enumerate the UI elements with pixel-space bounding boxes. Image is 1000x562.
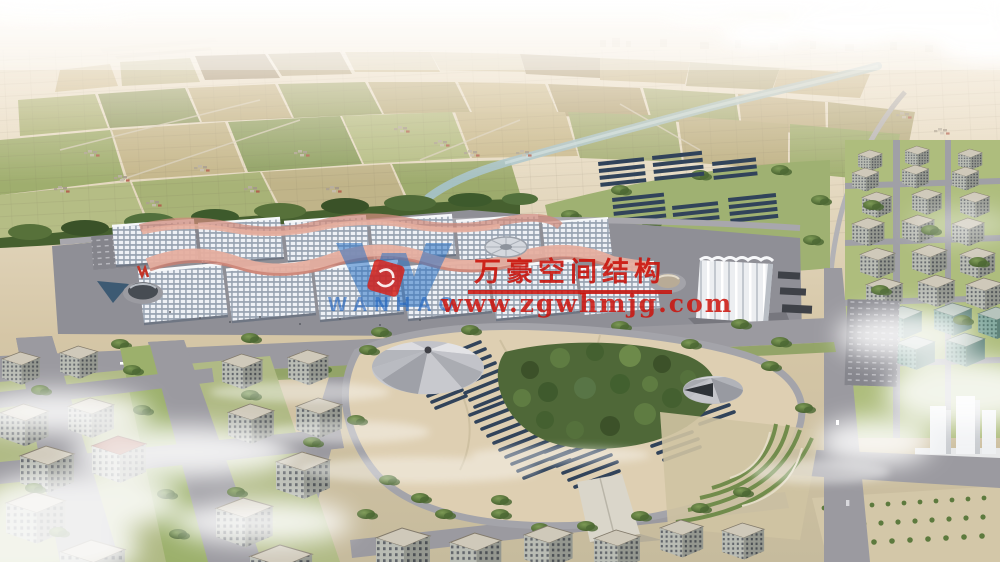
cone-tent-small bbox=[683, 376, 743, 404]
aerial-rendering-canvas: WANHAO 万豪空间结构 www.zgwhmjg.com bbox=[0, 0, 1000, 562]
round-pavilion-left bbox=[123, 282, 163, 304]
round-disc-hall bbox=[485, 237, 527, 257]
dome-pavilion-right bbox=[650, 273, 686, 293]
top-glare bbox=[0, 0, 1000, 70]
scene-rendering bbox=[0, 0, 1000, 562]
scalloped-ridge bbox=[700, 258, 773, 262]
